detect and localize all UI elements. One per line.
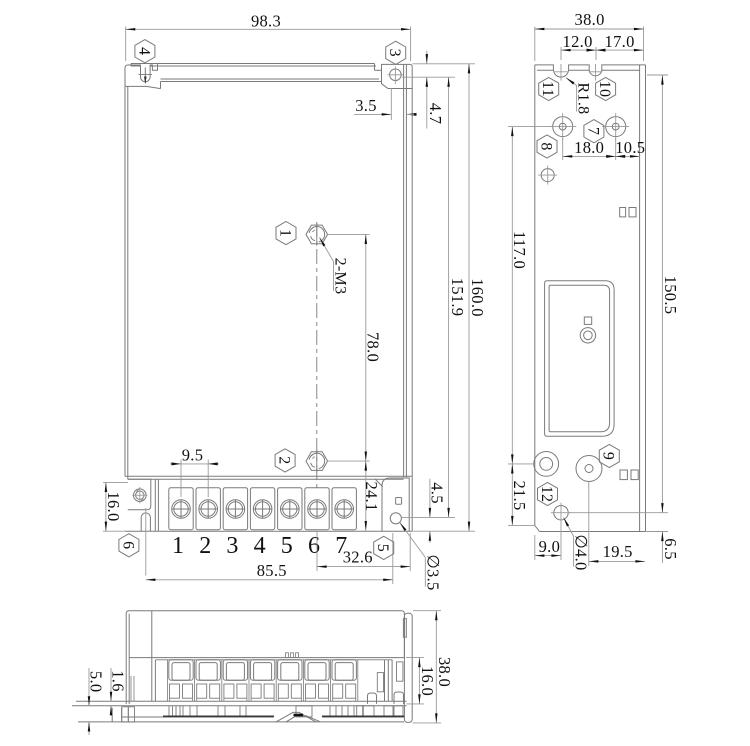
svg-text:7: 7 — [584, 127, 601, 135]
svg-text:5.0: 5.0 — [87, 671, 106, 693]
svg-text:4.5: 4.5 — [428, 482, 447, 504]
svg-text:11: 11 — [539, 81, 556, 97]
svg-text:9.0: 9.0 — [539, 537, 561, 556]
svg-text:8: 8 — [537, 142, 554, 150]
svg-text:1: 1 — [276, 229, 293, 237]
svg-text:117.0: 117.0 — [510, 231, 529, 269]
svg-text:1.6: 1.6 — [109, 670, 128, 692]
svg-text:5: 5 — [374, 544, 391, 552]
svg-text:2: 2 — [199, 533, 211, 559]
svg-text:9: 9 — [600, 452, 617, 460]
svg-text:17.0: 17.0 — [605, 32, 635, 51]
svg-text:160.0: 160.0 — [468, 278, 487, 317]
svg-text:24.1: 24.1 — [362, 481, 381, 511]
svg-text:12: 12 — [538, 486, 555, 503]
svg-text:10: 10 — [596, 81, 613, 98]
svg-text:85.5: 85.5 — [257, 561, 287, 580]
svg-text:6.5: 6.5 — [661, 538, 680, 560]
svg-text:2-M3: 2-M3 — [331, 258, 348, 295]
svg-text:3: 3 — [226, 533, 238, 559]
svg-text:9.5: 9.5 — [182, 445, 204, 464]
svg-text:1: 1 — [172, 533, 184, 559]
svg-text:2: 2 — [276, 456, 293, 464]
svg-text:12.0: 12.0 — [563, 32, 593, 51]
svg-text:3: 3 — [386, 49, 403, 57]
svg-text:38.0: 38.0 — [575, 10, 605, 29]
svg-text:3.5: 3.5 — [355, 96, 377, 115]
svg-text:16.0: 16.0 — [418, 666, 437, 696]
svg-text:21.5: 21.5 — [510, 480, 529, 510]
svg-text:R1.8: R1.8 — [575, 83, 592, 115]
svg-text:18.0: 18.0 — [574, 138, 604, 157]
svg-text:98.3: 98.3 — [251, 11, 281, 30]
svg-text:10.5: 10.5 — [615, 138, 645, 157]
svg-text:32.6: 32.6 — [343, 548, 373, 567]
svg-text:150.5: 150.5 — [661, 276, 680, 315]
svg-text:5: 5 — [281, 533, 293, 559]
svg-text:∅3.5: ∅3.5 — [424, 554, 443, 590]
svg-text:78.0: 78.0 — [364, 332, 383, 362]
svg-text:6: 6 — [119, 541, 136, 549]
svg-text:4: 4 — [135, 47, 152, 55]
svg-text:38.0: 38.0 — [435, 657, 454, 687]
svg-text:4: 4 — [254, 533, 266, 559]
svg-text:4.7: 4.7 — [426, 103, 445, 125]
svg-text:16.0: 16.0 — [104, 491, 123, 521]
svg-text:6: 6 — [308, 533, 320, 559]
svg-text:∅4.0: ∅4.0 — [572, 534, 591, 570]
svg-text:19.5: 19.5 — [603, 542, 633, 561]
svg-text:151.9: 151.9 — [448, 278, 467, 317]
